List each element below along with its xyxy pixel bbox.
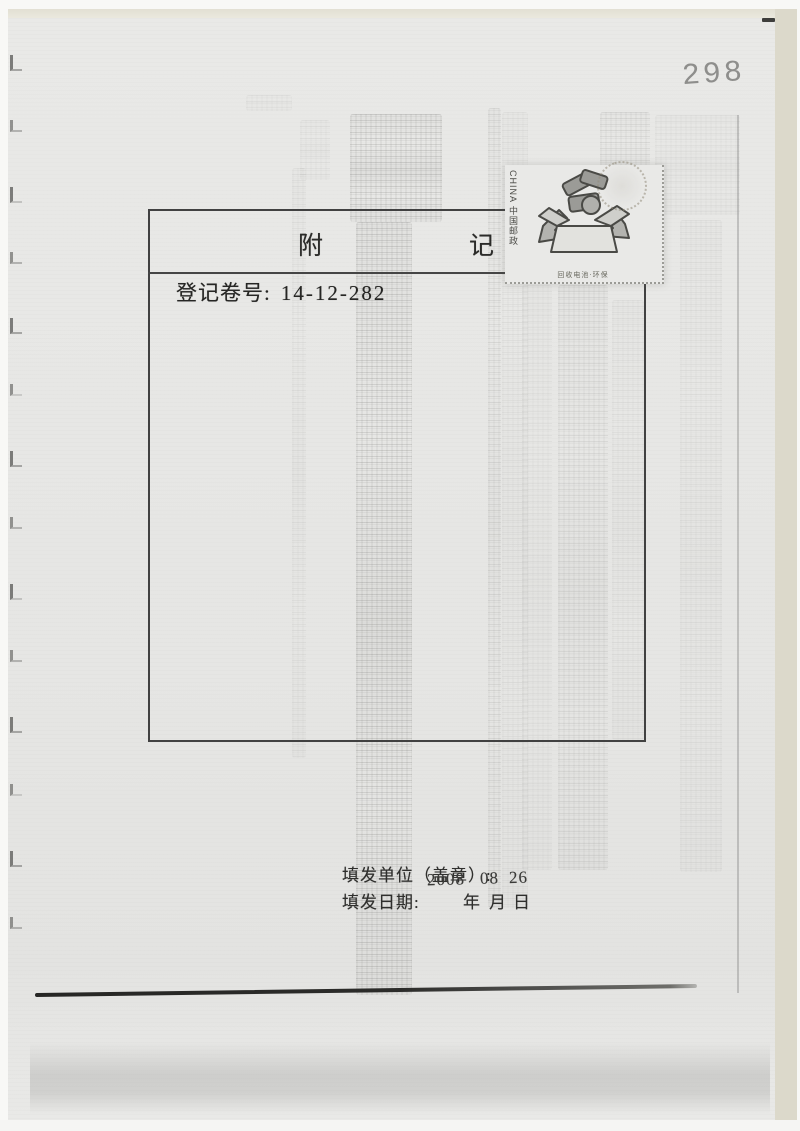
binding-mark — [10, 187, 22, 203]
binding-mark — [10, 120, 22, 132]
postage-stamp-caption: 回收电池·环保 — [523, 270, 643, 280]
scan-edge-bottom — [0, 1120, 800, 1131]
binding-mark — [10, 650, 22, 662]
binding-mark — [10, 252, 22, 264]
register-number-value: 14-12-282 — [281, 281, 387, 305]
date-unit-month: 月 — [489, 888, 506, 913]
date-unit-day: 日 — [513, 888, 530, 913]
postage-stamp-country-text: CHINA 中国邮政 — [507, 170, 520, 246]
smudge-streak — [350, 114, 442, 222]
date-stamp-year: 2008 — [427, 869, 466, 889]
date-unit-year: 年 — [463, 888, 480, 913]
fold-line — [737, 115, 739, 993]
binding-mark — [10, 584, 22, 600]
scan-edge-right — [775, 9, 797, 1123]
binding-mark — [10, 384, 22, 396]
binding-mark — [10, 784, 22, 796]
smudge-streak — [246, 95, 292, 111]
issue-date-label: 填发日期: — [342, 888, 420, 913]
smudge-streak — [300, 120, 330, 180]
smudge-streak — [680, 220, 722, 872]
binding-mark — [10, 451, 22, 467]
binding-mark — [10, 55, 22, 71]
postage-stamp: CHINA 中国邮政 回收电池·环保 — [505, 165, 664, 284]
appendix-title-left-char: 附 — [298, 226, 323, 262]
date-stamp-month: 08 — [480, 868, 500, 888]
binding-mark — [10, 717, 22, 733]
date-stamp: 20080826 — [427, 868, 529, 891]
appendix-title-right-char: 记 — [469, 226, 494, 262]
page-curl-shadow — [30, 1042, 770, 1114]
binding-mark — [10, 917, 22, 929]
scanned-document-page: 298 附 记 登记卷号:14-12-282 CHINA 中国邮政 — [0, 0, 800, 1131]
page-number-stamp: 298 — [681, 56, 746, 94]
binding-mark — [10, 851, 22, 867]
register-number-line: 登记卷号:14-12-282 — [176, 277, 386, 307]
register-number-label: 登记卷号: — [176, 281, 271, 305]
smudge-streak — [655, 115, 740, 215]
binding-mark — [10, 318, 22, 334]
corner-dash-mark — [762, 18, 775, 22]
date-stamp-day: 26 — [509, 868, 529, 888]
binding-mark — [10, 517, 22, 529]
appendix-title: 附 记 — [298, 226, 494, 262]
